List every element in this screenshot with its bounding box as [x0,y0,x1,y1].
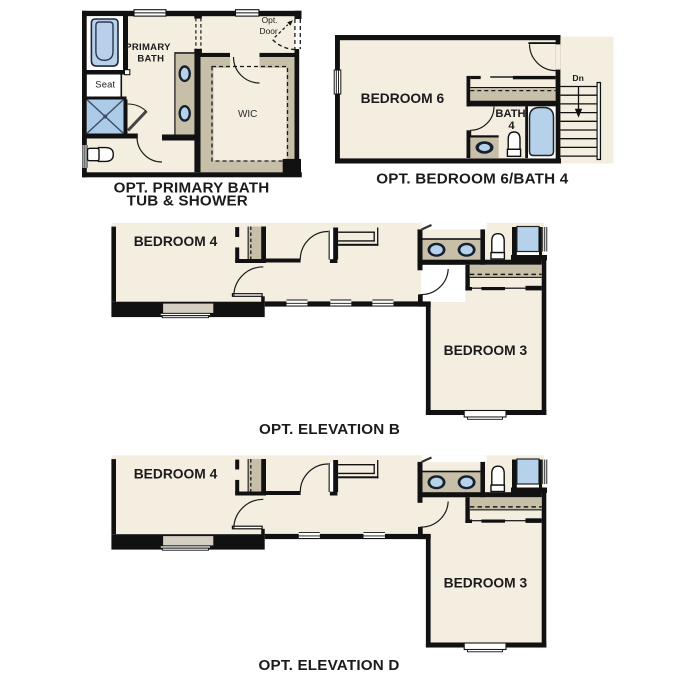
svg-text:OPT. BEDROOM 6/BATH 4: OPT. BEDROOM 6/BATH 4 [376,170,568,187]
svg-text:BEDROOM 3: BEDROOM 3 [444,343,528,358]
svg-text:BATH: BATH [137,54,164,65]
svg-text:BEDROOM 4: BEDROOM 4 [134,234,218,249]
svg-text:Dn: Dn [572,73,583,83]
svg-text:Opt.: Opt. [262,15,278,25]
svg-text:OPT. ELEVATION D: OPT. ELEVATION D [258,657,399,674]
svg-text:BATH: BATH [495,108,525,120]
svg-text:WIC: WIC [238,109,257,120]
svg-text:Seat: Seat [95,79,115,90]
svg-text:BEDROOM 3: BEDROOM 3 [444,576,528,591]
svg-text:BEDROOM 6: BEDROOM 6 [361,91,445,106]
svg-text:Door: Door [260,26,278,36]
svg-text:PRIMARY: PRIMARY [125,42,171,53]
svg-text:TUB & SHOWER: TUB & SHOWER [127,192,248,209]
svg-text:OPT. ELEVATION B: OPT. ELEVATION B [259,421,400,438]
svg-text:4: 4 [508,120,515,132]
svg-text:BEDROOM 4: BEDROOM 4 [134,467,218,482]
